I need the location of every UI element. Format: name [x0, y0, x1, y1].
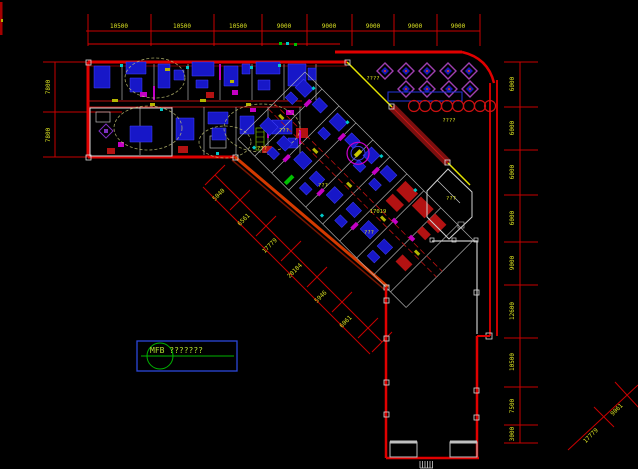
dimension-label: 10500 [229, 23, 247, 30]
dimension-label: 9000 [322, 23, 337, 30]
dimension-label: 9061 [609, 402, 624, 417]
cad-drawing-canvas[interactable]: 10500 10500 10500 9000 9000 9000 9000 90… [0, 0, 638, 469]
dimension-label: 10500 [509, 353, 516, 371]
dimension-label: 6561 [236, 212, 251, 227]
dimension-label: 7500 [509, 398, 516, 413]
dimension-label: 17779 [582, 427, 600, 445]
mfb-annotation[interactable]: MFB ??????? [137, 341, 237, 371]
dimension-label: 6000 [509, 120, 516, 135]
dimension-label: 17779 [261, 237, 279, 255]
dimension-label: 3000 [509, 426, 516, 441]
stair-marker [420, 461, 433, 468]
drawing-edge-artifact [0, 2, 3, 35]
corner-dimension-chain[interactable]: 17779 9061 [568, 382, 638, 450]
right-dimension-chain[interactable]: 6000 6000 6000 6000 9000 12600 10500 750… [504, 62, 538, 443]
plaza-pool [388, 92, 462, 101]
room-label: ??? [279, 128, 289, 134]
mfb-annotation-text: MFB ??????? [150, 346, 203, 355]
dimension-label: 20184 [286, 262, 304, 280]
plaza-label: ???? [442, 118, 455, 124]
dimension-label: 10500 [173, 23, 191, 30]
plaza[interactable]: ???? ???? [366, 63, 495, 124]
dimension-label: 6000 [509, 210, 516, 225]
top-dimension-chain[interactable]: 10500 10500 10500 9000 9000 9000 9000 90… [86, 14, 480, 46]
column-markers [384, 290, 479, 420]
dimension-label: 6061 [338, 314, 353, 329]
dimension-label: 12600 [509, 302, 516, 320]
site-boundary[interactable] [88, 42, 497, 339]
dimension-label: 9000 [277, 23, 292, 30]
dimension-label: 9000 [451, 23, 466, 30]
dimension-label: 5946 [313, 289, 328, 304]
dimension-label: 6000 [509, 164, 516, 179]
plaza-label: ???? [366, 76, 379, 82]
room-label: 17019 [370, 209, 387, 215]
room-label: ??? [257, 146, 267, 152]
diagonal-wing[interactable] [86, 60, 473, 307]
dimension-label: 9000 [509, 255, 516, 270]
dimension-label: 5040 [211, 187, 226, 202]
dimension-label: 7800 [45, 127, 52, 142]
dimension-label: 9000 [408, 23, 423, 30]
dimension-label: 6000 [509, 76, 516, 91]
room-label: ??? [318, 183, 328, 189]
dimension-label: 7800 [45, 79, 52, 94]
floor-plan-drawing[interactable]: 10500 10500 10500 9000 9000 9000 9000 90… [0, 0, 638, 469]
bottom-wing[interactable] [384, 287, 490, 468]
room-label: ??? [446, 196, 456, 202]
dimension-label: 10500 [110, 23, 128, 30]
room-label: ??? [364, 230, 374, 236]
plaza-hedge [409, 101, 496, 112]
upper-left-wing[interactable] [88, 58, 347, 158]
dimension-label: 9000 [366, 23, 381, 30]
